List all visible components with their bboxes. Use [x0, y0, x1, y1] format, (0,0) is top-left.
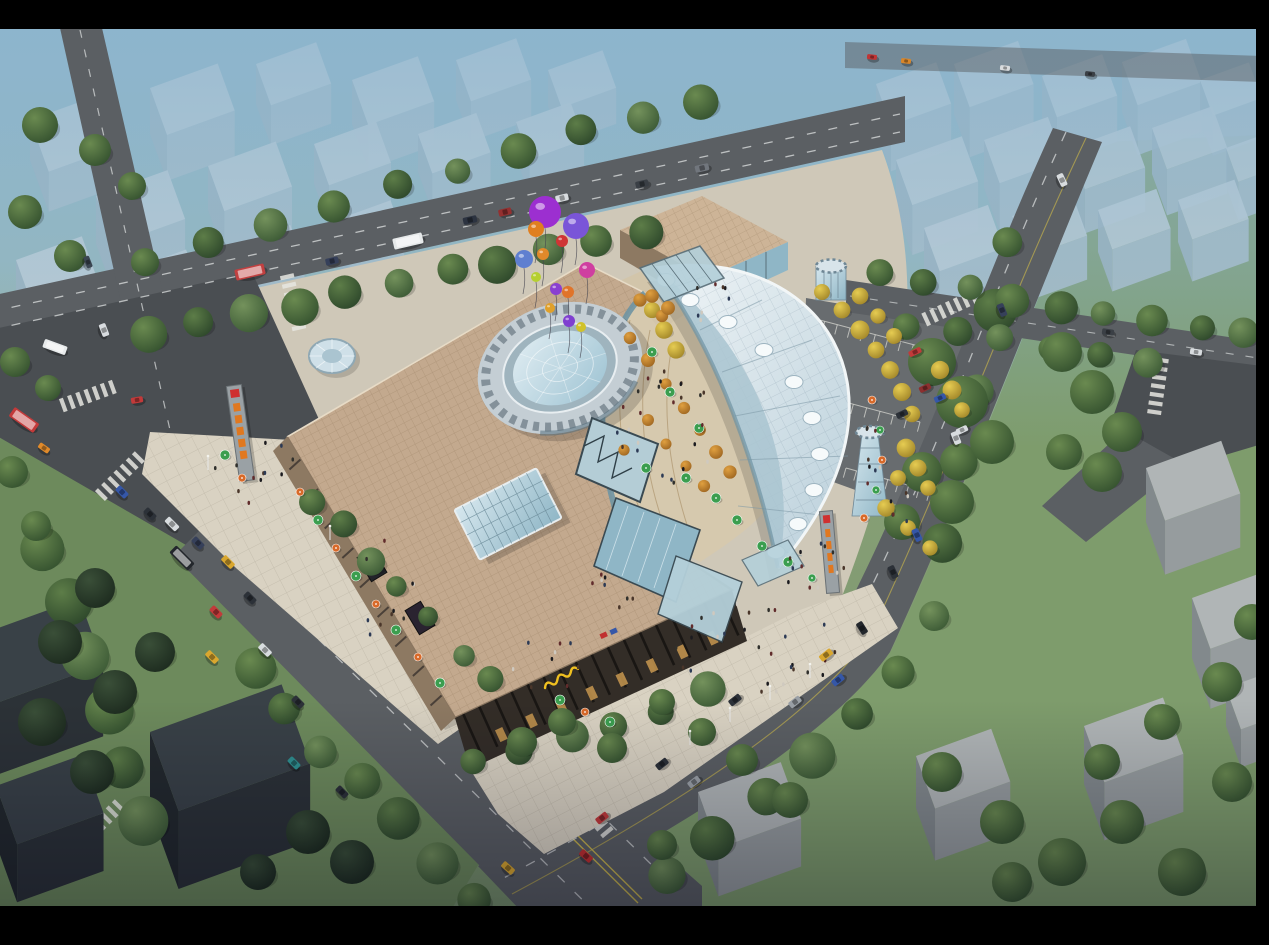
round-skylight	[755, 344, 773, 357]
umbrella-pole-tip	[224, 454, 226, 456]
orange-tree	[633, 293, 646, 306]
yellow-tree	[851, 321, 870, 340]
person	[616, 431, 619, 435]
tree	[477, 666, 503, 692]
person	[820, 541, 823, 545]
person	[682, 665, 685, 669]
orange-tree	[618, 444, 629, 455]
yellow-tree	[886, 328, 902, 344]
person	[670, 478, 673, 482]
person	[866, 427, 869, 431]
tree	[383, 170, 412, 199]
person	[770, 652, 773, 656]
tree	[930, 480, 974, 524]
tree	[0, 347, 30, 377]
person	[691, 624, 694, 628]
tree	[1133, 348, 1163, 378]
round-skylight	[805, 484, 823, 497]
tree	[1087, 342, 1113, 368]
yellow-tree	[890, 470, 906, 486]
umbrella-pole-tip	[863, 517, 865, 519]
tree	[919, 601, 949, 631]
tree	[445, 158, 470, 183]
tree	[629, 215, 663, 249]
person	[782, 682, 785, 686]
letterbox-top	[0, 0, 1269, 29]
pylon-glyph	[238, 438, 246, 447]
tree	[328, 275, 361, 308]
tree	[501, 133, 537, 169]
person	[716, 635, 719, 639]
person	[566, 684, 569, 688]
tree	[135, 632, 175, 672]
tree	[418, 607, 438, 627]
person	[712, 611, 715, 615]
person	[259, 478, 262, 482]
tree	[1045, 291, 1078, 324]
person	[628, 427, 631, 431]
person	[697, 313, 700, 317]
person	[379, 623, 382, 627]
balloon-highlight	[568, 219, 576, 225]
person	[702, 391, 705, 395]
round-skylight	[785, 376, 803, 389]
person	[874, 429, 877, 433]
person	[600, 573, 603, 577]
tree	[970, 420, 1014, 464]
light-pole-lamp	[207, 455, 210, 458]
tree	[1091, 301, 1115, 325]
tree	[385, 269, 414, 298]
person	[604, 575, 607, 579]
light-pole-lamp	[329, 525, 332, 528]
tree	[131, 248, 159, 276]
person	[791, 566, 794, 570]
person	[371, 629, 374, 633]
person	[247, 483, 250, 487]
orange-tree	[698, 480, 710, 492]
person	[383, 539, 386, 543]
tree	[22, 107, 58, 143]
person	[817, 585, 820, 589]
tree	[357, 547, 385, 575]
person	[724, 286, 727, 290]
orange-tree	[661, 301, 675, 315]
balloon	[515, 250, 533, 268]
letterbox-bottom	[0, 906, 1269, 945]
tree	[565, 114, 596, 145]
yellow-tree	[881, 361, 899, 379]
person	[559, 641, 562, 645]
person	[252, 476, 255, 480]
person	[821, 673, 824, 677]
umbrella-pole-tip	[669, 391, 671, 393]
person	[235, 463, 238, 467]
person	[842, 566, 845, 570]
windshield	[870, 55, 874, 58]
person	[682, 467, 685, 471]
orange-tree	[645, 289, 659, 303]
person	[639, 411, 642, 415]
person	[390, 612, 393, 616]
umbrella-pole-tip	[685, 477, 687, 479]
person	[892, 512, 895, 516]
yellow-tree	[852, 288, 869, 305]
person	[637, 441, 640, 445]
tree	[866, 259, 893, 286]
person	[789, 556, 792, 560]
yellow-tree	[920, 480, 935, 495]
person	[512, 667, 515, 671]
person	[723, 632, 726, 636]
orange-tree	[660, 438, 671, 449]
person	[680, 396, 683, 400]
tree	[1070, 370, 1114, 414]
person	[214, 466, 217, 470]
tree	[992, 227, 1022, 257]
umbrella-pole-tip	[651, 351, 653, 353]
balloon-highlight	[578, 324, 581, 326]
person	[868, 465, 871, 469]
person	[722, 285, 725, 289]
tree	[1042, 332, 1082, 372]
umbrella-pole-tip	[395, 629, 397, 631]
person	[693, 442, 696, 446]
balloon	[556, 235, 568, 247]
pylon-glyph	[236, 427, 244, 436]
umbrella-pole-tip	[439, 682, 441, 684]
person	[824, 544, 827, 548]
person	[774, 608, 777, 612]
balloon	[537, 248, 549, 260]
person	[767, 608, 770, 612]
umbrella-pole-tip	[317, 519, 319, 521]
person	[766, 682, 769, 686]
pylon-glyph	[825, 529, 831, 537]
person	[700, 616, 703, 620]
tree	[627, 102, 659, 134]
balloon-highlight	[582, 265, 587, 269]
tree	[986, 324, 1013, 351]
umbrella-pole-tip	[875, 489, 877, 491]
person	[748, 611, 751, 615]
person	[700, 310, 703, 314]
balloon	[562, 286, 574, 298]
umbrella-pole-tip	[811, 577, 813, 579]
light-pole-lamp	[769, 685, 772, 688]
tree	[1046, 434, 1082, 470]
tree	[1228, 317, 1258, 347]
person	[728, 297, 731, 301]
tree	[437, 254, 468, 285]
tree	[683, 84, 719, 120]
windshield	[1194, 350, 1199, 355]
person	[672, 400, 675, 404]
yellow-tree	[870, 308, 885, 323]
orange-tree	[709, 445, 723, 459]
person	[577, 665, 580, 669]
tree	[75, 568, 115, 608]
person	[365, 557, 368, 561]
balloon-highlight	[552, 286, 556, 289]
person	[697, 420, 700, 424]
balloon-highlight	[564, 289, 568, 292]
tree	[1082, 452, 1122, 492]
person	[787, 580, 790, 584]
tree	[35, 375, 61, 401]
person	[890, 499, 893, 503]
orange-tree	[678, 402, 690, 414]
person	[411, 582, 414, 586]
scene-canvas	[0, 0, 1269, 945]
letterbox-right	[1256, 0, 1269, 945]
round-skylight	[719, 316, 737, 329]
balloon-highlight	[535, 203, 545, 210]
person	[680, 382, 683, 386]
orange-tree	[723, 465, 736, 478]
pylon-glyph	[826, 541, 832, 549]
balloon	[545, 303, 555, 313]
umbrella-pole-tip	[645, 467, 647, 469]
person	[832, 550, 835, 554]
windshield	[1106, 330, 1111, 335]
umbrella-pole-tip	[736, 519, 738, 521]
windshield	[1003, 66, 1007, 69]
tree	[908, 338, 956, 386]
person	[743, 628, 746, 632]
umbrella-pole-tip	[715, 497, 717, 499]
person	[392, 609, 395, 613]
pylon-glyph	[827, 553, 833, 561]
person	[689, 669, 692, 673]
balloon-highlight	[558, 238, 562, 241]
person	[591, 581, 594, 585]
person	[237, 489, 240, 493]
person	[631, 596, 634, 600]
tree	[1136, 305, 1168, 337]
orange-tree	[642, 414, 654, 426]
person	[790, 665, 793, 669]
person	[618, 605, 621, 609]
umbrella-pole-tip	[761, 545, 763, 547]
person	[775, 689, 778, 693]
tree	[281, 288, 318, 325]
orange-tree	[624, 332, 636, 344]
person	[530, 685, 533, 689]
person	[800, 564, 803, 568]
person	[905, 519, 908, 523]
round-skylight	[803, 412, 821, 425]
umbrella-pole-tip	[881, 459, 883, 461]
round-skylight	[789, 518, 807, 531]
person	[792, 667, 795, 671]
pylon-glyph	[828, 565, 834, 573]
balloon	[550, 283, 562, 295]
yellow-tree	[954, 402, 970, 418]
tree	[958, 275, 983, 300]
umbrella-pole-tip	[879, 429, 881, 431]
person	[699, 393, 702, 397]
tree	[38, 620, 82, 664]
person	[402, 616, 405, 620]
person	[663, 369, 666, 373]
person	[367, 618, 370, 622]
yellow-tree	[834, 302, 851, 319]
person	[696, 286, 699, 290]
tree	[330, 510, 357, 537]
person	[879, 465, 882, 469]
umbrella-pole-tip	[299, 491, 301, 493]
yellow-tree	[868, 342, 885, 359]
umbrella-pole-tip	[335, 547, 337, 549]
person	[690, 635, 693, 639]
person	[549, 674, 552, 678]
person	[626, 596, 629, 600]
tree	[318, 190, 350, 222]
tree	[183, 307, 213, 337]
tree	[453, 645, 475, 667]
person	[806, 670, 809, 674]
windshield	[904, 59, 908, 62]
yellow-tree	[655, 321, 673, 339]
person	[784, 634, 787, 638]
balloon	[579, 262, 595, 278]
umbrella-pole-tip	[241, 477, 243, 479]
tree	[54, 240, 86, 272]
tree	[130, 316, 167, 353]
balloon-highlight	[539, 251, 543, 254]
person	[659, 379, 662, 383]
windshield	[135, 398, 140, 403]
yellow-tree	[667, 341, 684, 358]
pylon-glyph	[233, 403, 241, 412]
balloon-highlight	[547, 305, 550, 307]
balloon-highlight	[565, 318, 569, 321]
person	[661, 474, 664, 478]
umbrella-pole-tip	[871, 399, 873, 401]
person	[603, 583, 606, 587]
person	[874, 468, 877, 472]
light-pole-lamp	[809, 663, 812, 666]
tree	[79, 134, 111, 166]
yellow-tree	[814, 284, 830, 300]
balloon-highlight	[519, 254, 524, 258]
balloon-highlight	[531, 224, 536, 228]
pylon-top-mark	[230, 389, 240, 398]
person	[647, 376, 650, 380]
person	[714, 282, 717, 286]
person	[799, 550, 802, 554]
yellow-tree	[922, 540, 937, 555]
windshield	[1088, 72, 1092, 75]
balloon	[576, 322, 586, 332]
tree	[8, 195, 42, 229]
balloon	[563, 315, 575, 327]
person	[621, 445, 624, 449]
tree	[254, 208, 288, 242]
person	[551, 657, 554, 661]
balloon	[563, 213, 589, 239]
tree	[1102, 412, 1142, 452]
tree	[21, 511, 51, 541]
balloon	[528, 221, 544, 237]
person	[823, 623, 826, 627]
person	[808, 585, 811, 589]
person	[866, 481, 869, 485]
tree	[118, 172, 146, 200]
yellow-tree	[897, 439, 916, 458]
yellow-tree	[931, 361, 949, 379]
person	[736, 602, 739, 606]
tree	[193, 227, 224, 258]
tree	[386, 576, 406, 596]
umbrella-pole-tip	[355, 575, 357, 577]
person	[636, 448, 639, 452]
round-skylight	[681, 294, 699, 307]
person	[230, 451, 233, 455]
person	[247, 501, 250, 505]
balloon	[531, 272, 541, 282]
person	[706, 460, 709, 464]
tree	[882, 656, 915, 689]
tree	[943, 317, 972, 346]
person	[658, 385, 661, 389]
tree	[230, 294, 268, 332]
umbrella-pole-tip	[417, 656, 419, 658]
tree	[1190, 315, 1215, 340]
umbrella-pole-tip	[787, 561, 789, 563]
person	[672, 481, 675, 485]
person	[699, 318, 702, 322]
tree	[1202, 662, 1242, 702]
person	[280, 472, 283, 476]
tree	[478, 246, 516, 284]
person	[758, 645, 761, 649]
person	[701, 423, 704, 427]
pylon-top-mark	[823, 515, 831, 524]
person	[264, 441, 267, 445]
person	[554, 650, 557, 654]
person	[264, 471, 267, 475]
person	[280, 444, 283, 448]
person	[637, 389, 640, 393]
person	[291, 457, 294, 461]
person	[760, 690, 763, 694]
person	[622, 405, 625, 409]
person	[369, 632, 372, 636]
pylon-glyph	[235, 415, 243, 424]
person	[906, 494, 909, 498]
person	[675, 646, 678, 650]
pylon-glyph	[240, 450, 248, 459]
person	[867, 457, 870, 461]
tree	[910, 269, 937, 296]
person	[905, 491, 908, 495]
round-skylight	[811, 448, 829, 461]
umbrella-pole-tip	[698, 427, 700, 429]
person	[527, 641, 530, 645]
person	[569, 641, 572, 645]
umbrella-pole-tip	[375, 603, 377, 605]
yellow-tree	[909, 459, 926, 476]
architectural-rendering	[0, 0, 1269, 945]
yellow-tree	[893, 383, 911, 401]
balloon-highlight	[533, 274, 536, 276]
person	[600, 578, 603, 582]
person	[836, 571, 839, 575]
